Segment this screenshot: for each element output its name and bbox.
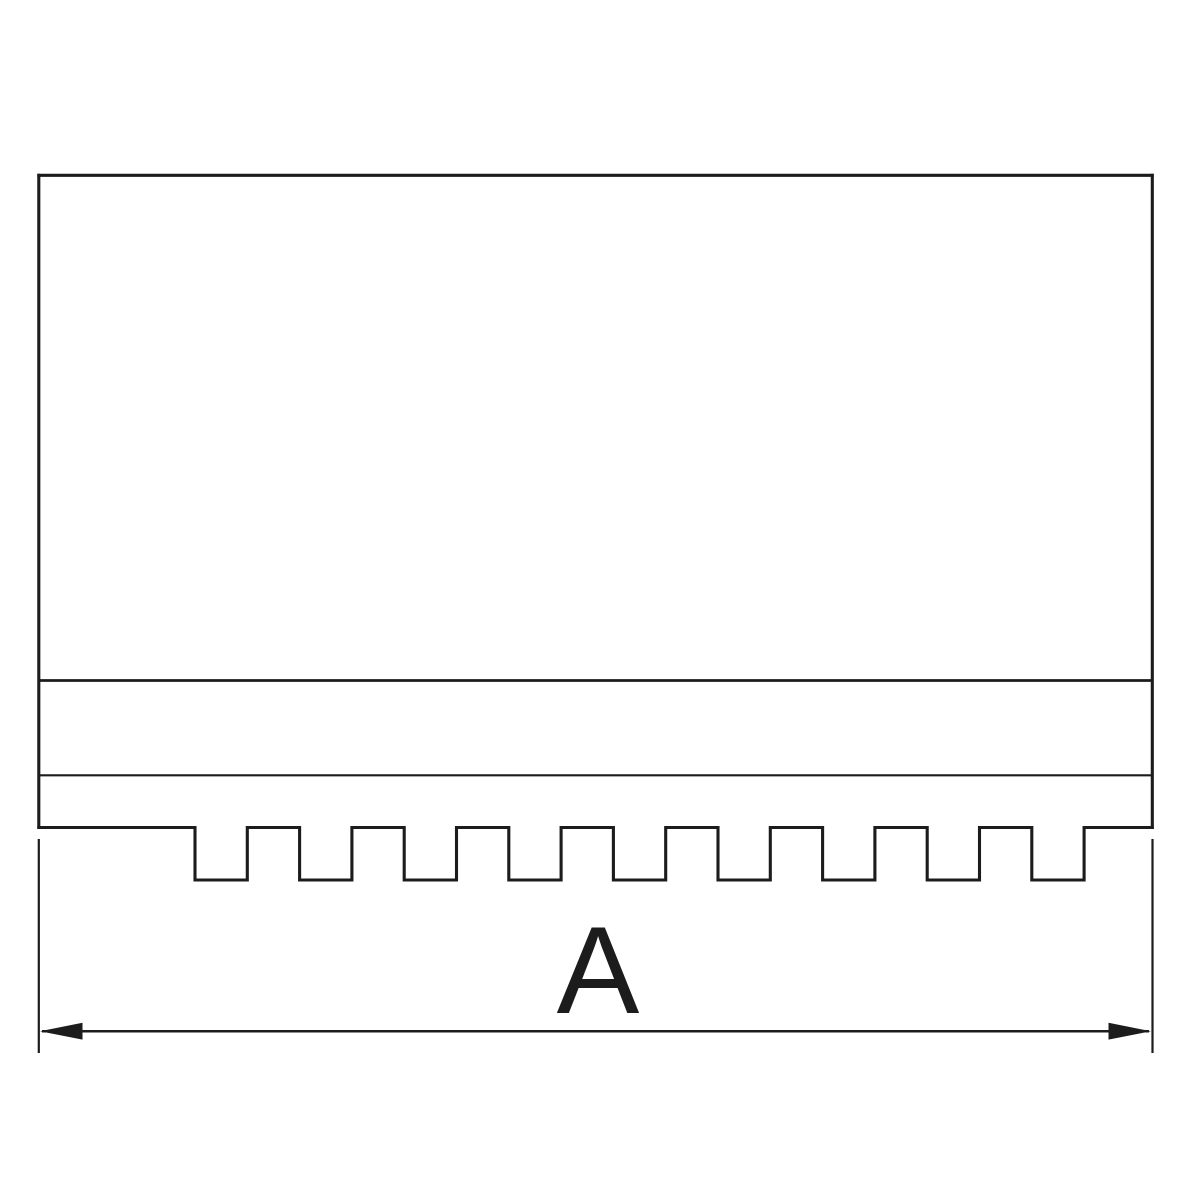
svg-text:A: A <box>557 902 640 1040</box>
